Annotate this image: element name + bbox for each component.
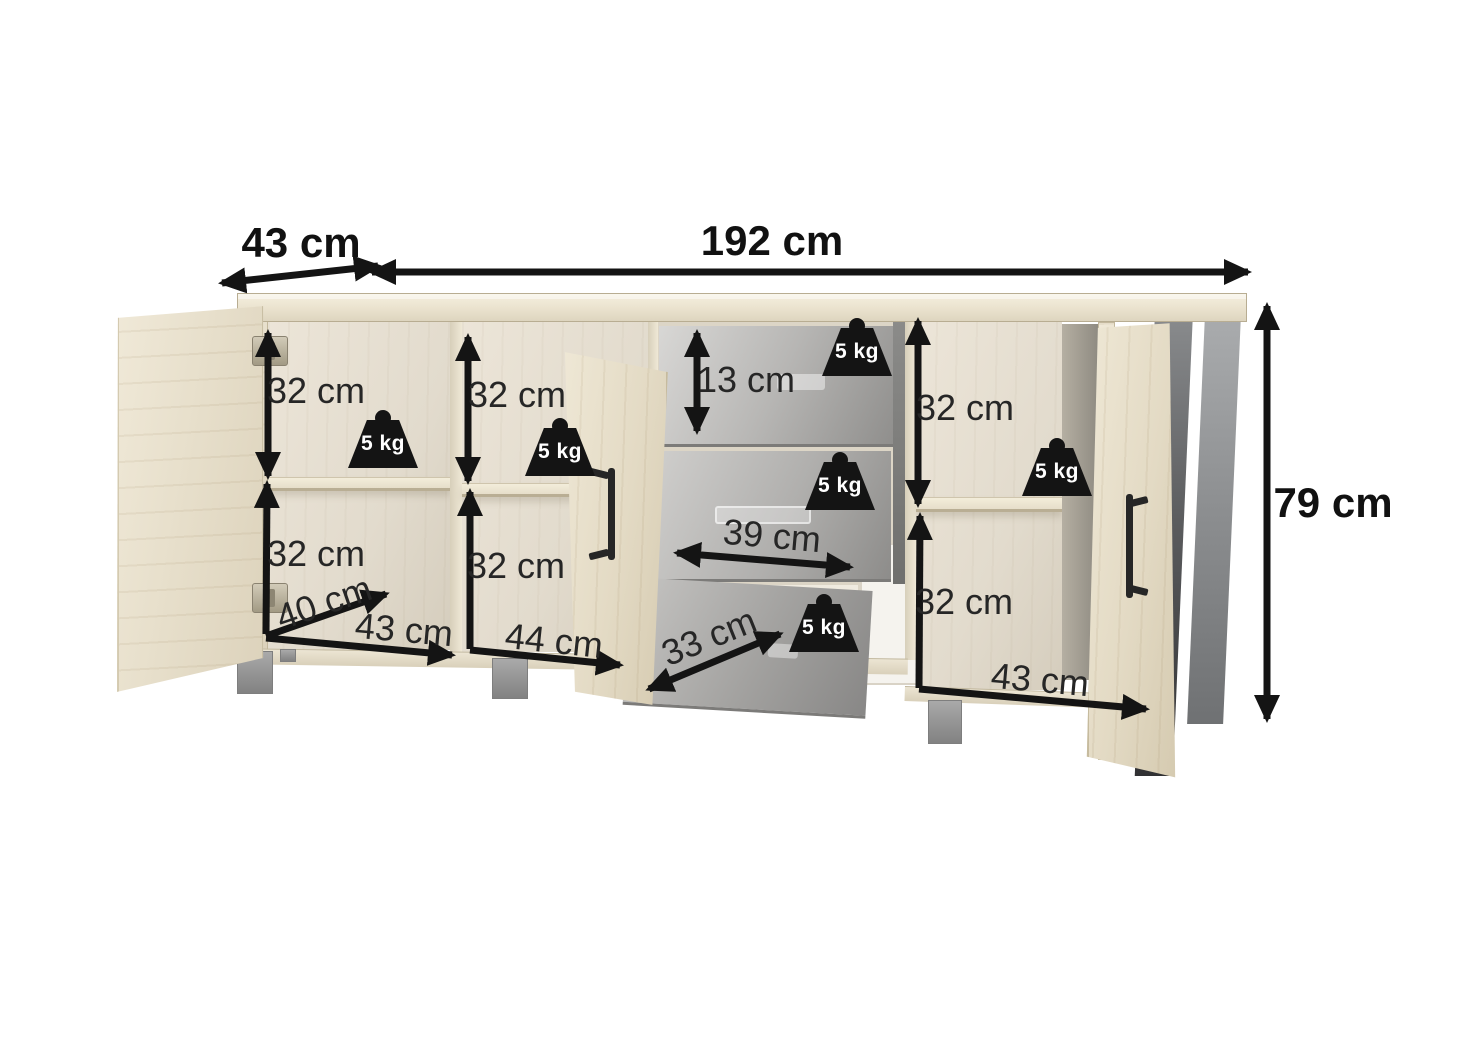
dim-middle-drawer-width: 39 cm — [722, 514, 823, 558]
left-door-hinge-top — [252, 336, 288, 366]
divider-1 — [450, 322, 462, 652]
weight-bottom-drawer: 5 kg — [789, 594, 859, 666]
metal-leg-rear — [1187, 314, 1241, 724]
weight-left-shelf: 5 kg — [348, 410, 418, 482]
dim-top-depth: 43 cm — [241, 222, 360, 264]
leg-center — [492, 658, 528, 699]
dim-right-width: 43 cm — [990, 658, 1091, 702]
weight-right-shelf: 5 kg — [1022, 438, 1092, 510]
dim-left-upper-height: 32 cm — [267, 373, 365, 409]
leg-left-rear — [280, 649, 296, 662]
weight-center-shelf: 5 kg — [525, 418, 595, 490]
dim-center-lower-height: 32 cm — [467, 548, 565, 584]
dim-total-width: 192 cm — [701, 220, 843, 262]
dim-total-height: 79 cm — [1273, 482, 1392, 524]
right-door-handle — [1122, 486, 1149, 606]
dim-left-width: 43 cm — [354, 608, 455, 652]
dim-center-width: 44 cm — [503, 618, 604, 664]
dim-top-drawer-height: 13 cm — [697, 362, 795, 398]
dim-right-lower-height: 32 cm — [915, 584, 1013, 620]
leg-right-inner — [928, 700, 962, 744]
weight-top-drawer: 5 kg — [822, 318, 892, 390]
weight-middle-drawer: 5 kg — [805, 452, 875, 524]
dim-left-lower-height: 32 cm — [267, 536, 365, 572]
furniture-dimension-diagram: 5 kg 5 kg 5 kg 5 kg 5 kg 5 kg — [0, 0, 1474, 1046]
top-panel — [237, 293, 1247, 322]
left-door — [116, 305, 265, 695]
dim-right-upper-height: 32 cm — [916, 390, 1014, 426]
dim-center-upper-height: 32 cm — [468, 377, 566, 413]
